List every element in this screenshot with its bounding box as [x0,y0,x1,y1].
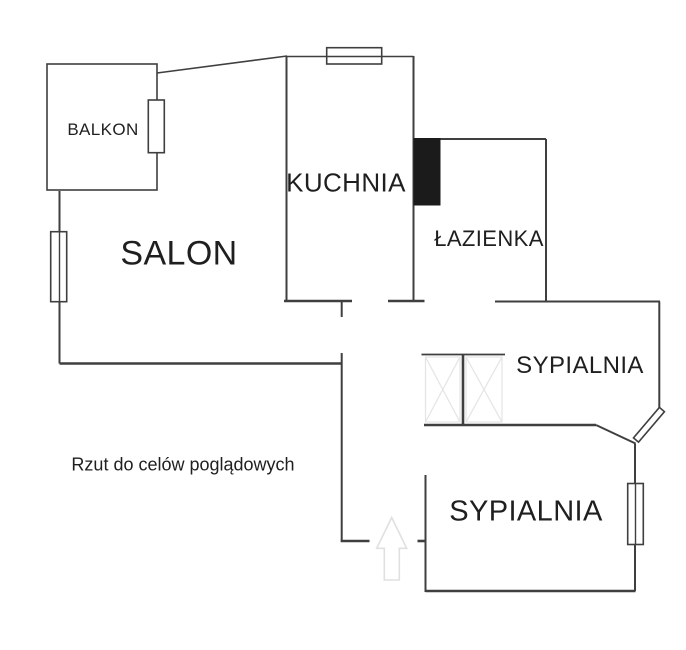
room-label-lazienka: ŁAZIENKA [434,226,544,252]
room-label-sypialnia-upper: SYPIALNIA [516,352,644,380]
balcony-window-icon [148,100,164,153]
floor-plan: BALKON SALON KUCHNIA ŁAZIENKA SYPIALNIA … [0,0,686,650]
room-label-balkon: BALKON [67,120,138,140]
room-label-salon: SALON [120,235,237,274]
wall-salon-top-diagonal [157,56,287,73]
plan-disclaimer-note: Rzut do celów poglądowych [71,455,294,476]
entrance-arrow-icon [377,518,407,581]
room-label-kuchnia: KUCHNIA [286,168,406,199]
floor-plan-drawing [0,0,686,650]
salon-window-icon [51,232,67,302]
bedroom1-door-icon [633,407,664,442]
chimney-duct-block [414,138,441,206]
wall-bedroom1-corner-diagonal [596,425,636,444]
room-label-sypialnia-lower: SYPIALNIA [449,496,603,529]
